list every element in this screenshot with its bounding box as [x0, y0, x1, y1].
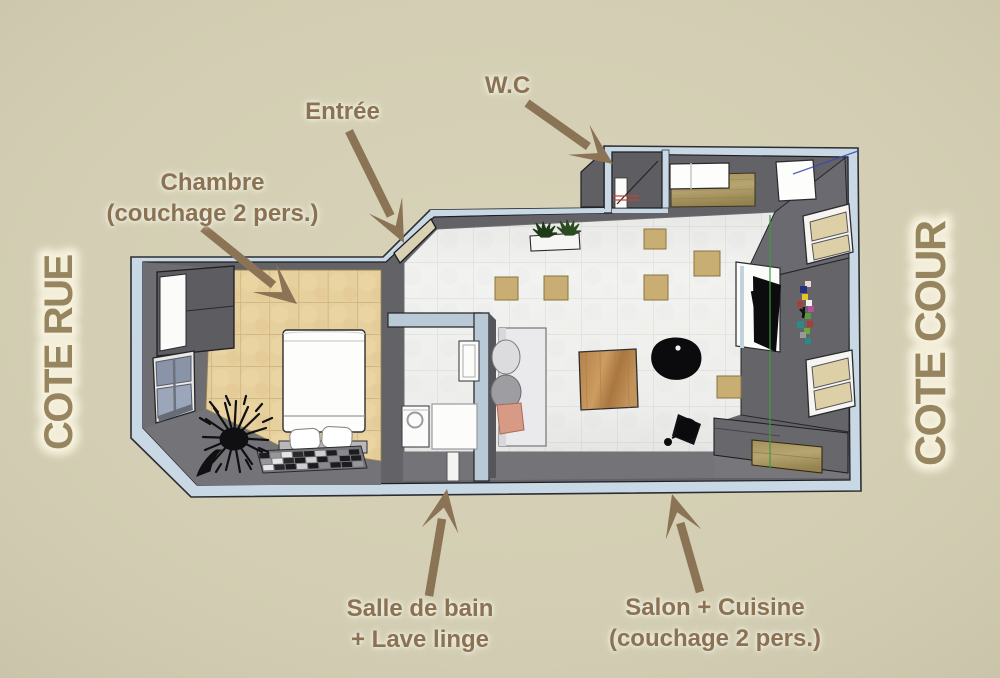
svg-text:COTE COUR: COTE COUR: [907, 220, 955, 466]
svg-text:COTE RUE: COTE RUE: [37, 255, 81, 451]
